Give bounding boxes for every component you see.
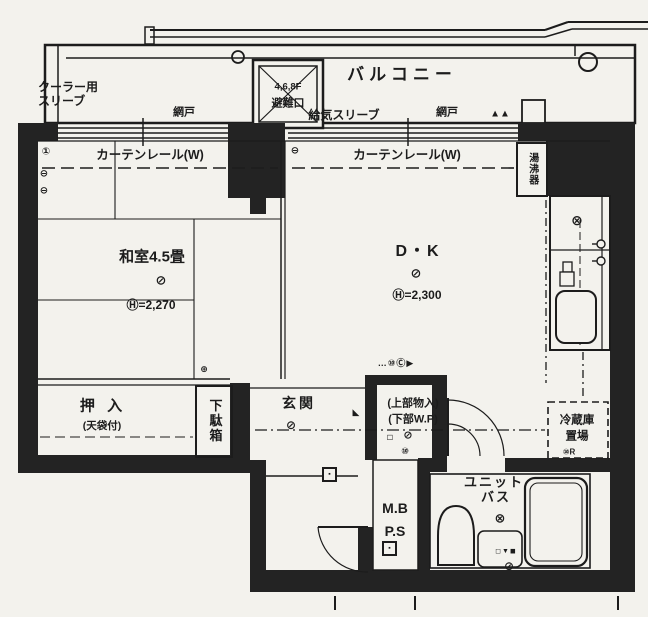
washitsu-light-icon: ⊘ bbox=[156, 274, 167, 289]
washitsu-corner-mark-icon: ⊕ bbox=[200, 364, 208, 374]
water-heater-label: 湯沸器 bbox=[526, 153, 538, 186]
genkan-door-mark-icon: ◣ bbox=[353, 407, 360, 417]
partition-triangles: ▲▲ bbox=[490, 108, 510, 120]
air-supply-sleeve-label: 給気スリーブ bbox=[308, 109, 379, 123]
curtain-rail-left-label: カーテンレール(W) bbox=[96, 148, 204, 162]
meter-box-icon: ▪ bbox=[382, 541, 397, 556]
bath-vent-icon: ⊗ bbox=[495, 512, 506, 527]
bathtub bbox=[525, 478, 587, 566]
cooler-sleeve-line2: スリーブ bbox=[38, 94, 98, 108]
balcony-label: バルコニー bbox=[347, 65, 457, 85]
dk-light-icon: ⊘ bbox=[411, 267, 422, 282]
ps-label: P.S bbox=[385, 523, 406, 539]
closet-light-icon: ⊘ bbox=[403, 430, 412, 443]
washitsu-ceiling-height: Ⓗ=2,270 bbox=[126, 299, 175, 313]
wall-symbol-3-icon: ⊖ bbox=[40, 185, 48, 197]
getabako-label: 下駄箱 bbox=[207, 399, 222, 444]
dk-ceiling-height: Ⓗ=2,300 bbox=[392, 289, 441, 303]
cooler-sleeve-line1: クーラー用 bbox=[38, 80, 98, 94]
oshiire-label: 押 入 bbox=[80, 397, 126, 414]
fridge-label-line1: 冷蔵庫 bbox=[560, 414, 595, 427]
closet-circle-mark-icon: ⑩ bbox=[401, 446, 409, 456]
hatch-floors-label: 4,6,8F bbox=[275, 83, 302, 94]
curtain-rail-right-label: カーテンレール(W) bbox=[353, 148, 461, 162]
fridge-mark-icon: ⑩R bbox=[563, 447, 576, 456]
dk-outlet-icon: ⊖ bbox=[291, 145, 299, 157]
bath-drain-icon: ⊘ bbox=[504, 560, 514, 574]
genkan-light-icon: ⊘ bbox=[286, 419, 296, 433]
closet-upper-label: (上部物入) bbox=[387, 398, 438, 411]
wall-symbol-1-icon: ① bbox=[42, 146, 50, 158]
oshiire-sub-label: (天袋付) bbox=[83, 420, 122, 432]
dimension-ticks bbox=[335, 596, 618, 610]
stove-icon: ⊗ bbox=[571, 212, 583, 228]
washbasin-marks-icon: ◻▼◼ bbox=[495, 548, 517, 556]
mb-label: M.B bbox=[382, 500, 408, 516]
doorbell-box-icon: ▪ bbox=[322, 467, 337, 482]
hatch-label: 避難口 bbox=[272, 98, 305, 111]
screen-door-right-label: 網戸 bbox=[436, 107, 458, 120]
washitsu-label: 和室4.5畳 bbox=[119, 248, 185, 265]
unit-bath-label-line1: ユニット bbox=[464, 476, 524, 491]
kitchen-sink bbox=[556, 291, 596, 343]
electrical-symbol-row: …⑩Ⓒ▶ bbox=[378, 358, 415, 368]
closet-square-icon: ◻ bbox=[387, 432, 394, 441]
screen-door-left-label: 網戸 bbox=[173, 107, 195, 120]
floorplan: バルコニー クーラー用 スリーブ 網戸 給気スリーブ 網戸 ▲▲ 4,6,8F … bbox=[0, 0, 648, 617]
fridge-label-line2: 置場 bbox=[566, 430, 589, 443]
closet-lower-label: (下部W.P) bbox=[388, 414, 438, 427]
toilet bbox=[438, 506, 474, 565]
genkan-label: 玄関 bbox=[282, 395, 316, 411]
dk-label: D・K bbox=[395, 243, 440, 261]
unit-bath-label-line2: バス bbox=[481, 491, 511, 506]
wall-symbol-2-icon: ⊖ bbox=[40, 168, 48, 180]
